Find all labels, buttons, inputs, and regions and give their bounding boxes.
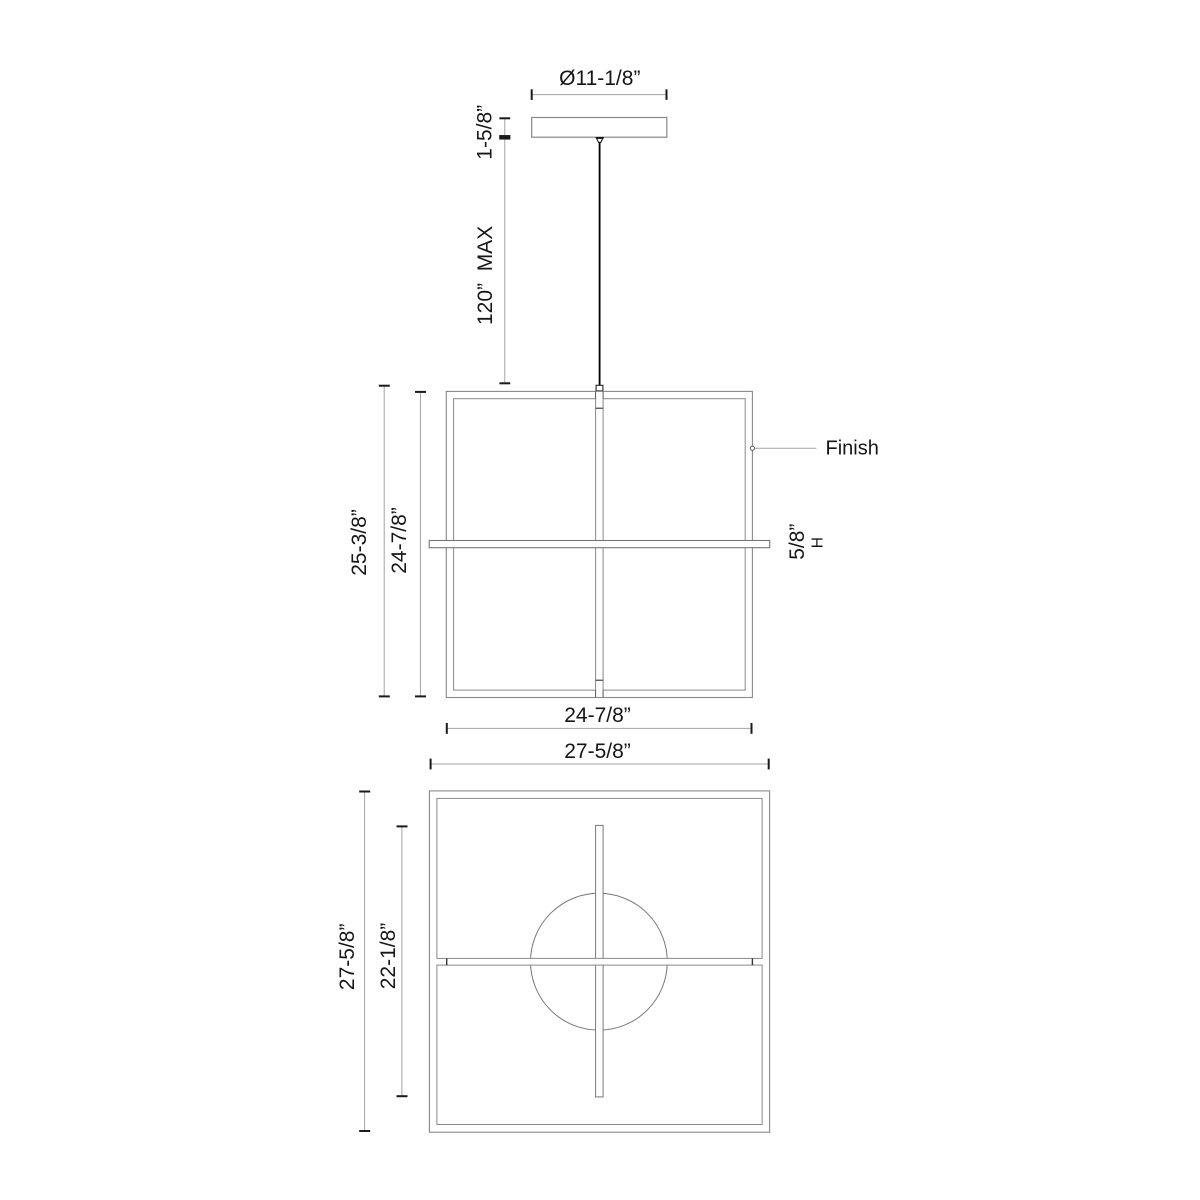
svg-text:1-5/8”: 1-5/8” <box>474 105 497 160</box>
svg-text:25-3/8”: 25-3/8” <box>348 509 371 576</box>
svg-text:120” MAX: 120” MAX <box>474 226 497 325</box>
svg-text:27-5/8”: 27-5/8” <box>336 924 359 991</box>
svg-text:22-1/8”: 22-1/8” <box>377 923 400 990</box>
svg-text:Ø11-1/8”: Ø11-1/8” <box>559 67 640 90</box>
svg-text:27-5/8”: 27-5/8” <box>564 740 631 763</box>
svg-text:24-7/8”: 24-7/8” <box>564 704 631 727</box>
svg-text:Finish: Finish <box>826 437 879 459</box>
svg-text:5/8”: 5/8” <box>786 524 809 560</box>
svg-text:24-7/8”: 24-7/8” <box>388 507 411 574</box>
svg-text:H: H <box>809 537 826 548</box>
